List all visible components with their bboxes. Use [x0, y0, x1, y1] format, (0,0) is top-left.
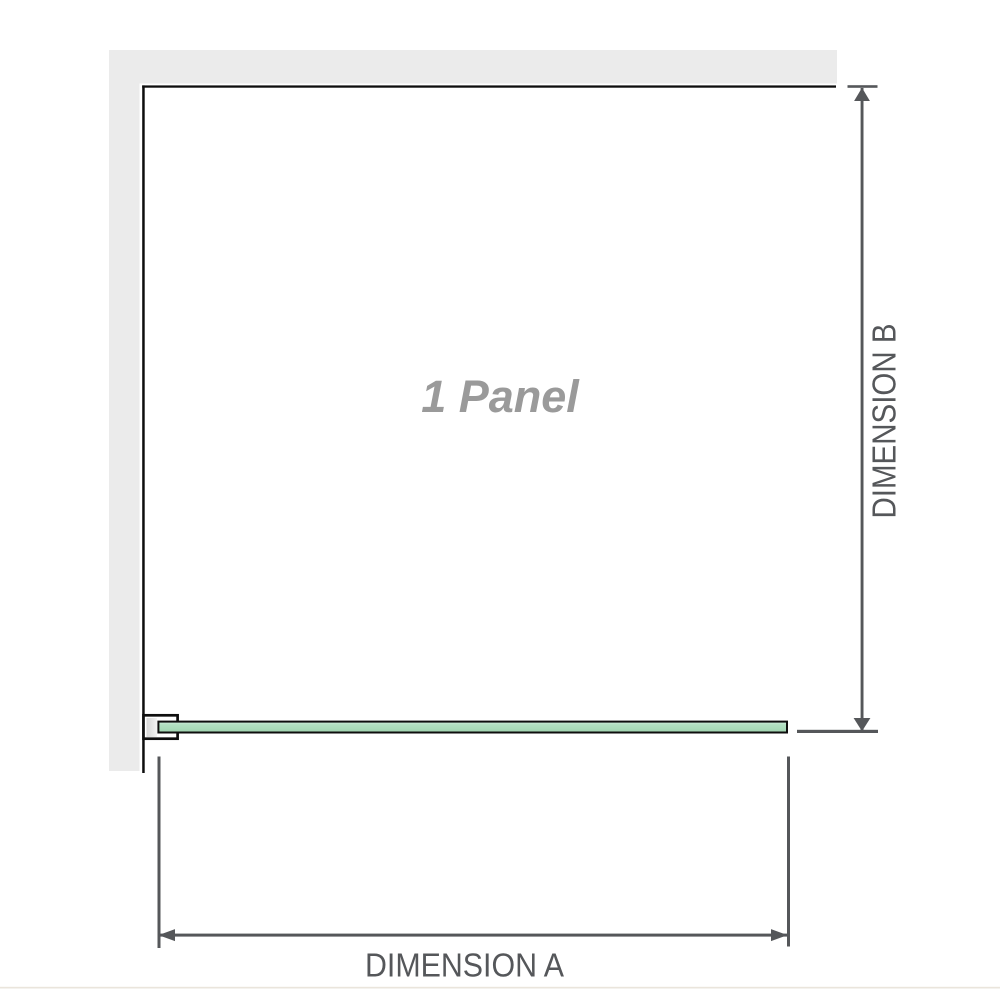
- svg-text:DIMENSION B: DIMENSION B: [866, 324, 903, 519]
- svg-text:DIMENSION A: DIMENSION A: [365, 947, 564, 984]
- svg-text:1 Panel: 1 Panel: [421, 371, 580, 422]
